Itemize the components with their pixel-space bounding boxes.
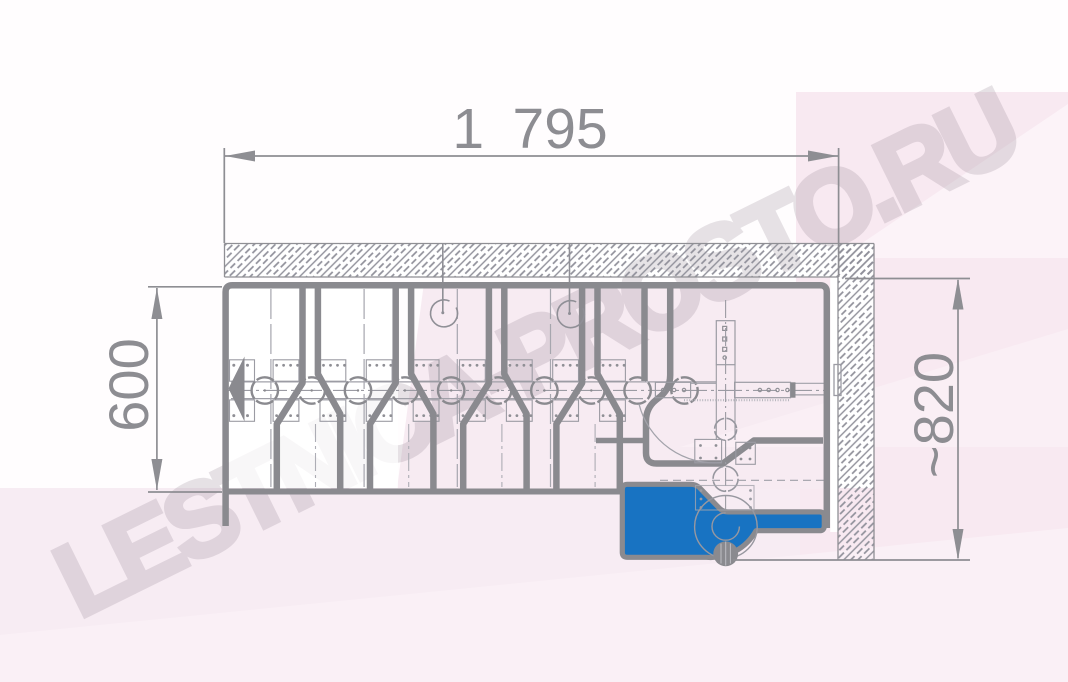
svg-text:600: 600 — [97, 338, 160, 431]
svg-text:~820: ~820 — [902, 352, 965, 478]
svg-text:1 795: 1 795 — [452, 97, 607, 161]
